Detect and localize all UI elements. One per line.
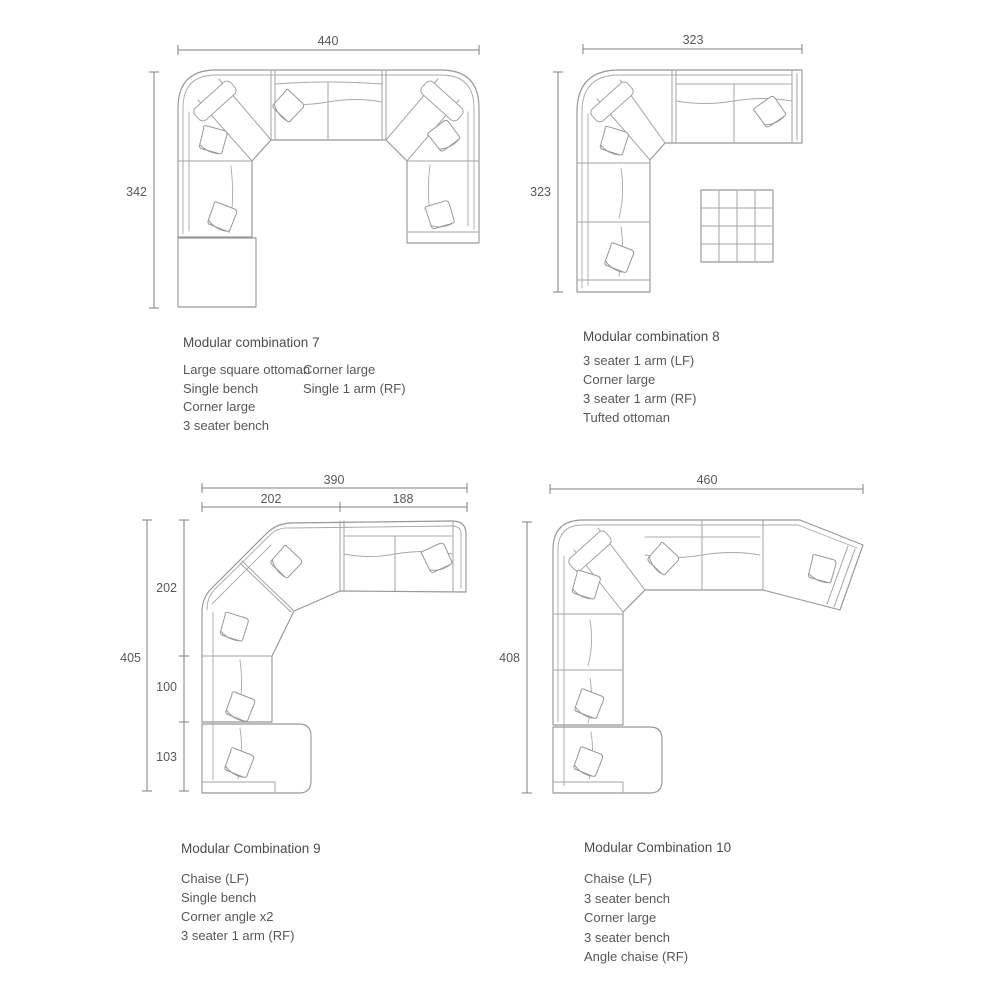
combo-8-tufted-ottoman [701,190,773,262]
part-item: Corner large [303,361,406,380]
part-item: Corner large [584,908,688,928]
combo-10-title: Modular Combination 10 [584,840,731,855]
combo-9-parts: Chaise (LF) Single bench Corner angle x2… [181,869,294,945]
combo-7-title: Modular combination 7 [183,335,320,350]
part-item: Corner angle x2 [181,907,294,926]
combo-7-parts-col1: Large square ottoman Single bench Corner… [183,361,310,435]
part-item: 3 seater bench [584,889,688,909]
part-item: Single bench [181,888,294,907]
combo-8-width-dim: 323 [683,33,704,47]
combo-10-height-dim: 408 [499,651,520,665]
part-item: Large square ottoman [183,361,310,380]
part-item: Corner large [183,398,310,417]
combo-9-segment-top-dim: 202 [156,581,177,595]
combo-8-title: Modular combination 8 [583,329,720,344]
part-item: 3 seater bench [183,417,310,436]
part-item: Angle chaise (RF) [584,947,688,967]
combo-9-height-dim: 405 [120,651,141,665]
combo-9-segment-bottom-dim: 103 [156,750,177,764]
combo-9-chaise [202,724,311,793]
combo-9-width-left-dim: 202 [261,492,282,506]
part-item: Tufted ottoman [583,408,696,427]
combo-9-width-dim: 390 [324,473,345,487]
combo-9-segment-middle-dim: 100 [156,680,177,694]
combo-7-ottoman [178,238,256,307]
combo-9-dimensions: 390 202 188 405 202 100 103 [120,473,467,791]
combo-10-parts: Chaise (LF) 3 seater bench Corner large … [584,869,688,967]
combo-10-chaise [553,727,662,793]
combo-9-title: Modular Combination 9 [181,841,321,856]
combo-7-drawing: 440 342 [120,30,510,320]
combo-10-dimensions: 460 408 [499,473,863,793]
part-item: Single 1 arm (RF) [303,380,406,399]
combo-8-parts: 3 seater 1 arm (LF) Corner large 3 seate… [583,351,696,427]
combo-9-drawing: 390 202 188 405 202 100 103 [125,475,485,805]
part-item: Single bench [183,380,310,399]
part-item: Chaise (LF) [584,869,688,889]
combo-10-width-dim: 460 [697,473,718,487]
combo-10-drawing: 460 408 [495,475,890,805]
part-item: 3 seater 1 arm (RF) [181,926,294,945]
part-item: 3 seater 1 arm (LF) [583,351,696,370]
part-item: 3 seater 1 arm (RF) [583,389,696,408]
combo-8-height-dim: 323 [530,185,551,199]
combo-10-pillows [571,542,837,778]
part-item: 3 seater bench [584,928,688,948]
combo-9-width-right-dim: 188 [393,492,414,506]
part-item: Corner large [583,370,696,389]
combo-8-pillows [599,94,787,273]
part-item: Chaise (LF) [181,869,294,888]
combo-8-dimensions: 323 323 [530,33,802,292]
combo-8-drawing: 323 323 [505,30,850,320]
combo-7-width-dim: 440 [318,34,339,48]
combo-7-parts-col2: Corner large Single 1 arm (RF) [303,361,406,398]
combo-7-height-dim: 342 [126,185,147,199]
